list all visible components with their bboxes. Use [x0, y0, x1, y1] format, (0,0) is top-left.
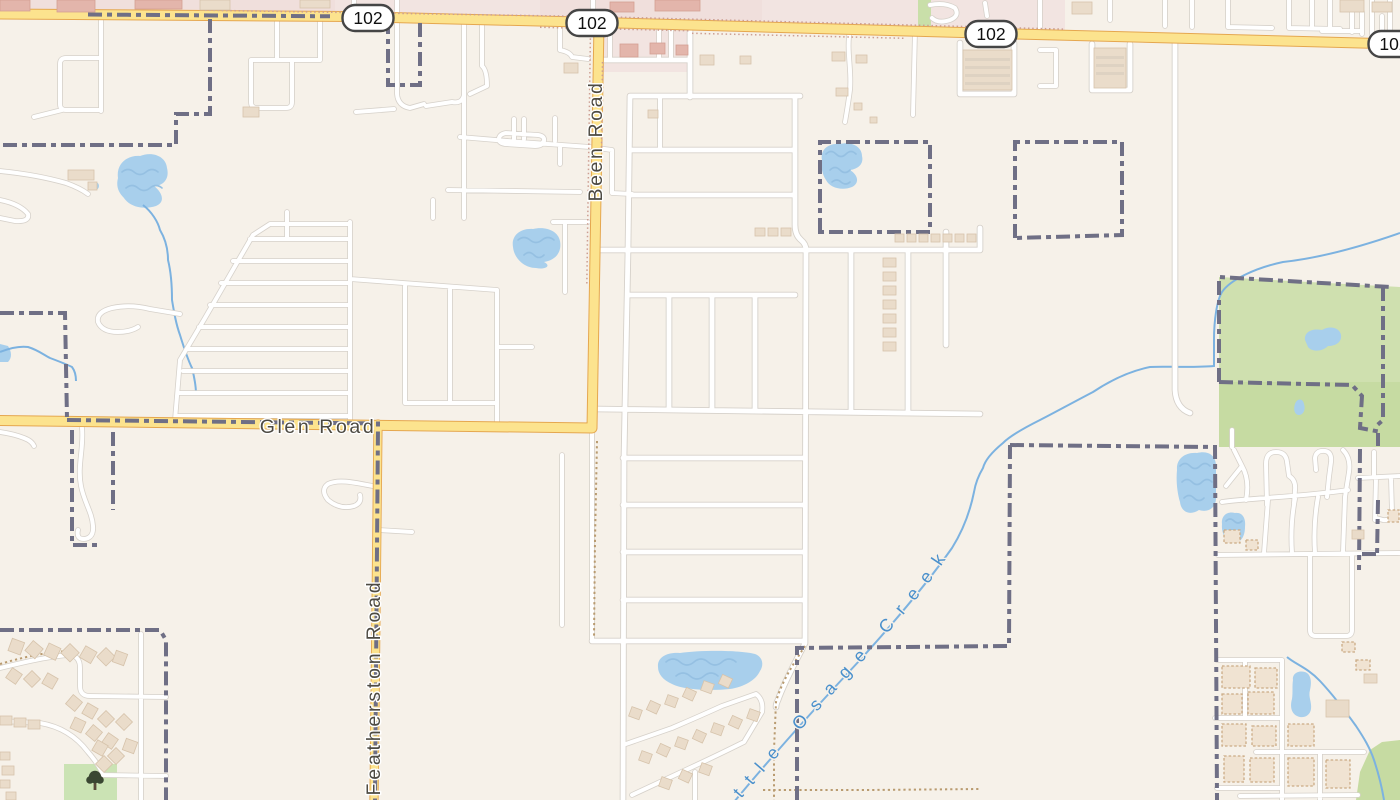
svg-text:102: 102: [353, 8, 382, 28]
svg-text:102: 102: [577, 13, 606, 33]
svg-text:102: 102: [1379, 34, 1400, 54]
svg-text:102: 102: [976, 24, 1005, 44]
svg-text:Glen Road: Glen Road: [260, 416, 377, 438]
svg-text:Been Road: Been Road: [585, 81, 607, 202]
svg-text:Featherston Road: Featherston Road: [363, 579, 385, 796]
